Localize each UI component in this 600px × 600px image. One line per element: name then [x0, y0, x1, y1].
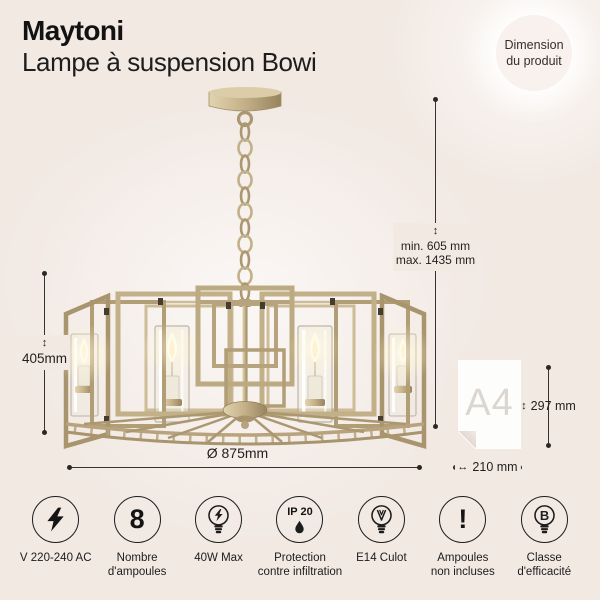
spec-row: V 220-240 AC 8 Nombre d'ampoules	[0, 496, 600, 580]
dim-dot	[42, 271, 47, 276]
product-dimension-card: Maytoni Lampe à suspension Bowi Dimensio…	[0, 0, 600, 600]
spec-efficiency-class: B Classe d'efficacité	[504, 496, 585, 580]
a4-height-label: ↕ 297 mm	[518, 398, 579, 415]
spec-label: V 220-240 AC	[20, 551, 92, 565]
dim-dot	[433, 97, 438, 102]
spec-label: 40W Max	[194, 551, 243, 565]
dim-dot	[67, 465, 72, 470]
a4-width-line: ↔ 210 mm	[455, 467, 520, 468]
bulb-class-icon: B	[531, 504, 558, 535]
body-height-line: ↕ 405mm	[44, 273, 45, 433]
spec-circle: IP 20	[276, 496, 323, 543]
spec-circle	[32, 496, 79, 543]
dim-dot	[546, 365, 551, 370]
horizontal-arrows-icon: ↔	[457, 462, 468, 473]
spec-label: Ampoules non incluses	[431, 551, 495, 580]
lightning-icon	[42, 506, 69, 533]
header: Maytoni Lampe à suspension Bowi	[22, 16, 316, 78]
diameter-line: Ø 875mm	[69, 467, 420, 468]
suspension-height-label: ↕ min. 605 mm max. 1435 mm	[393, 223, 478, 271]
spec-circle: 8	[114, 496, 161, 543]
body-height-label: ↕ 405mm	[19, 335, 70, 370]
water-drop-icon	[294, 520, 305, 534]
spec-voltage: V 220-240 AC	[15, 496, 96, 580]
badge-line2: du produit	[506, 53, 562, 69]
ip-drop-icon: IP 20	[287, 507, 313, 534]
brand-title: Maytoni	[22, 16, 316, 47]
dimension-badge: Dimension du produit	[496, 15, 572, 91]
spec-circle: !	[439, 496, 486, 543]
badge-line1: Dimension	[504, 37, 563, 53]
vertical-arrows-icon: ↕	[521, 401, 527, 412]
suspension-min: min. 605 mm	[401, 239, 470, 253]
exclamation-icon: !	[458, 506, 467, 533]
dim-dot	[546, 443, 551, 448]
a4-label: A4	[465, 382, 513, 425]
suspension-height-line: ↕ min. 605 mm max. 1435 mm	[435, 99, 436, 427]
spec-max-power: 40W Max	[178, 496, 259, 580]
class-letter: B	[540, 508, 549, 523]
spec-circle	[358, 496, 405, 543]
product-name: Lampe à suspension Bowi	[22, 48, 316, 78]
body-height-value: 405mm	[22, 351, 67, 367]
vertical-arrows-icon: ↕	[42, 338, 48, 349]
dim-dot	[433, 424, 438, 429]
suspension-max: max. 1435 mm	[396, 253, 475, 267]
a4-width-value: 210 mm	[472, 460, 517, 475]
spec-ip-rating: IP 20 Protection contre infiltration	[259, 496, 340, 580]
count-icon: 8	[130, 506, 145, 533]
dim-dot	[417, 465, 422, 470]
a4-height-line: ↕ 297 mm	[548, 367, 549, 446]
spec-label: Protection contre infiltration	[258, 551, 342, 580]
bulb-lightning-icon	[205, 504, 232, 535]
a4-height-value: 297 mm	[531, 399, 576, 414]
spec-bulb-count: 8 Nombre d'ampoules	[96, 496, 177, 580]
spec-label: Nombre d'ampoules	[108, 551, 166, 580]
bulb-filament-icon	[368, 504, 395, 535]
spec-socket-type: E14 Culot	[341, 496, 422, 580]
spec-label: E14 Culot	[356, 551, 407, 565]
spec-bulbs-not-included: ! Ampoules non incluses	[422, 496, 503, 580]
a4-paper: A4	[458, 360, 521, 449]
spec-circle: B	[521, 496, 568, 543]
vertical-arrows-icon: ↕	[433, 226, 439, 237]
spec-circle	[195, 496, 242, 543]
a4-width-label: ↔ 210 mm	[454, 459, 520, 476]
spec-label: Classe d'efficacité	[517, 551, 571, 580]
diameter-label: Ø 875mm	[207, 445, 268, 461]
dim-dot	[42, 430, 47, 435]
